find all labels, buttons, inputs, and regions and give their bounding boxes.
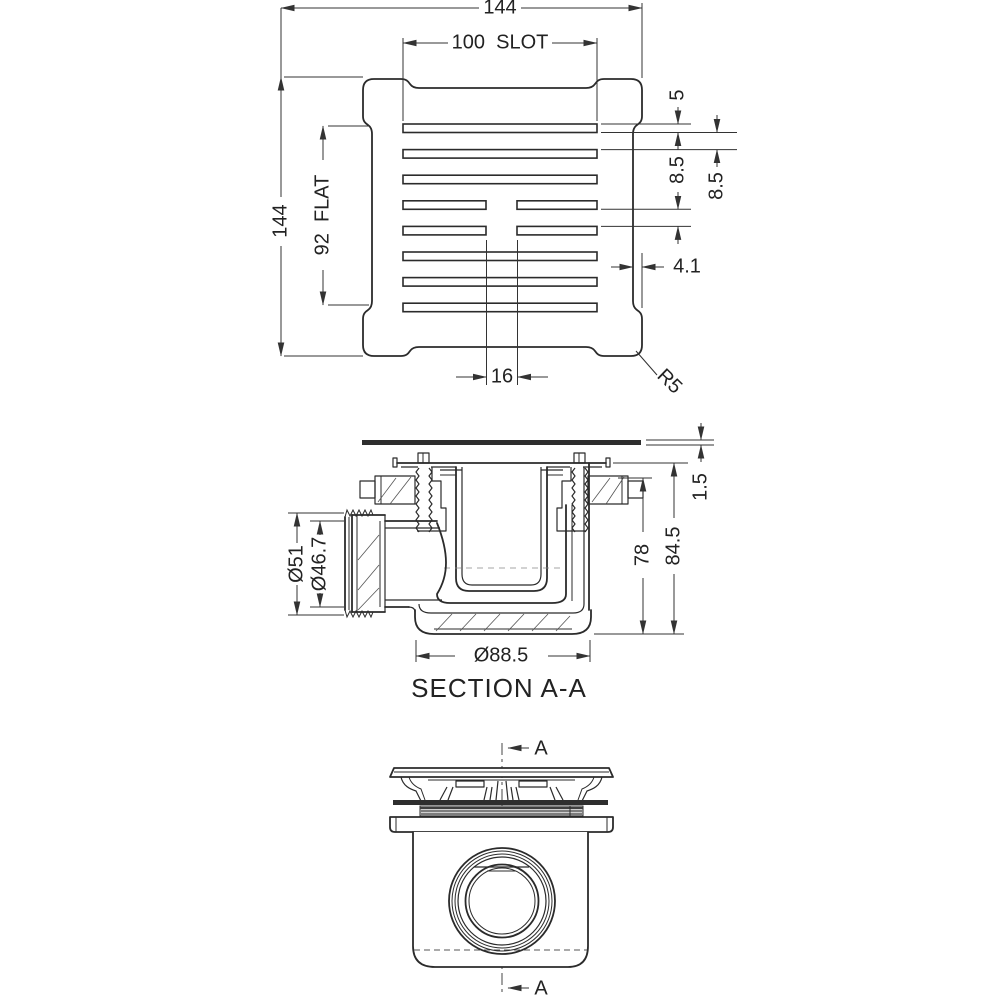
dim-slot-width-label: 5 [666,89,688,100]
dim-base-diameter-label: Ø88.5 [474,644,528,666]
top-view: 144 100 SLOT 144 92 FLA [269,0,737,398]
dim-slot-length-label: 100 SLOT [452,31,549,53]
dimension-slot-length: 100 SLOT [403,31,597,121]
drain-technical-drawing: 144 100 SLOT 144 92 FLA [0,0,1000,1000]
dim-plate-thickness-label: 1.5 [689,473,711,501]
front-view: A A [390,737,613,999]
dimension-corner-radius: R5 [636,351,686,398]
section-letter-top: A [534,737,548,759]
dimension-outlet-id: Ø46.7 [308,521,344,607]
section-letter-bottom: A [534,977,548,999]
dim-overall-width-label: 144 [483,0,516,18]
dim-outlet-id-label: Ø46.7 [308,537,330,591]
dim-center-gap-label: 16 [491,365,513,387]
section-flange [393,453,610,467]
dimension-flat-edge: 92 FLAT [311,126,369,305]
dim-inner-height-label: 78 [631,544,653,566]
section-view: 1.5 [285,423,714,703]
dim-corner-radius-label: R5 [653,365,687,399]
section-arrow-bottom: A [508,977,548,999]
section-clamp-tabs [360,476,643,504]
section-title: SECTION A-A [411,673,587,703]
technical-drawing-canvas: 144 100 SLOT 144 92 FLA [0,0,1000,1000]
front-grate-plate [390,768,613,777]
front-seal-ring [393,800,608,805]
grate-slots [403,124,597,312]
front-thread-band [420,806,583,816]
dim-rib-b-label: 8.5 [705,172,727,200]
dimension-edge-step: 4.1 [611,253,701,308]
grate-outline [363,79,642,356]
dimension-center-gap: 16 [456,240,548,387]
section-grate-plate [362,440,641,445]
dim-section-overall-height-label: 84.5 [662,527,684,566]
section-outer-vessel [408,463,591,634]
section-arrow-top: A [508,737,548,759]
section-outlet-pipe [345,510,442,617]
dimension-rib-a: 8.5 [601,156,691,244]
dimension-base-diameter: Ø88.5 [416,640,590,666]
front-flange [390,817,613,832]
front-body [413,832,588,967]
section-thread-columns [416,467,588,532]
dim-flat-edge-label: 92 FLAT [311,175,333,256]
dim-edge-step-label: 4.1 [673,255,701,277]
dim-rib-a-label: 8.5 [666,156,688,184]
section-inner-cup [440,467,563,591]
dim-overall-height-label: 144 [269,204,291,237]
dimension-plate-thickness: 1.5 [646,423,714,501]
dim-outlet-od-label: Ø51 [285,545,307,583]
